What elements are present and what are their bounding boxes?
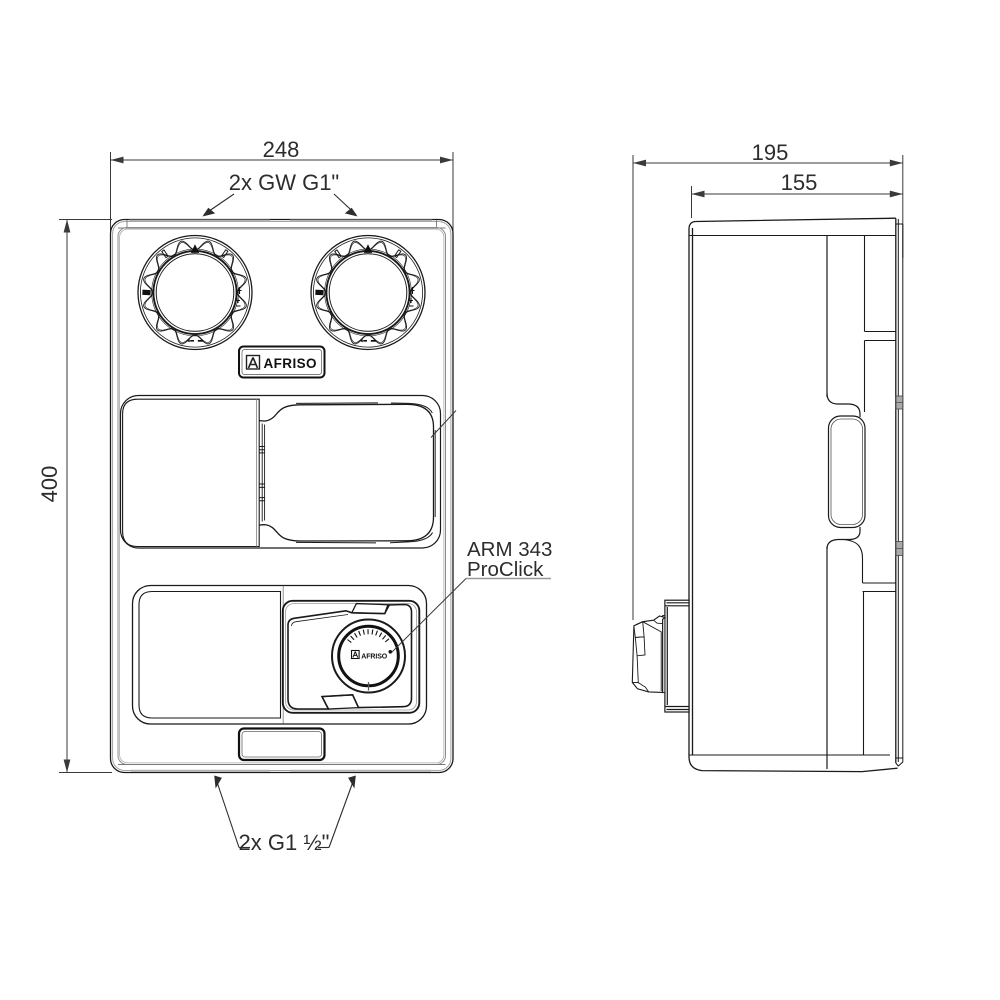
svg-text:195: 195 [752, 140, 789, 165]
svg-text:248: 248 [263, 137, 300, 162]
svg-text:400: 400 [37, 466, 62, 503]
svg-text:2x G1 ½": 2x G1 ½" [239, 830, 330, 855]
svg-text:155: 155 [781, 170, 818, 195]
svg-text:ProClick: ProClick [467, 558, 544, 581]
svg-text:AFRISO: AFRISO [264, 356, 317, 371]
svg-text:2x GW G1": 2x GW G1" [229, 170, 340, 195]
svg-text:AFRISO: AFRISO [361, 653, 388, 660]
